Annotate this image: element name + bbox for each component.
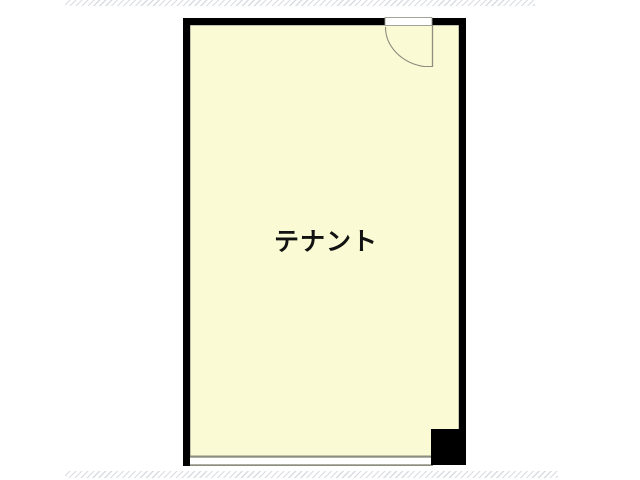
wall-right bbox=[459, 18, 466, 430]
door-opening bbox=[385, 18, 432, 26]
room-label: テナント bbox=[258, 222, 394, 258]
wall-left bbox=[183, 18, 190, 466]
pillar bbox=[431, 429, 466, 465]
window-line-top bbox=[190, 456, 433, 458]
floorplan-canvas: テナント bbox=[0, 0, 640, 480]
window-line-bottom bbox=[190, 464, 433, 466]
